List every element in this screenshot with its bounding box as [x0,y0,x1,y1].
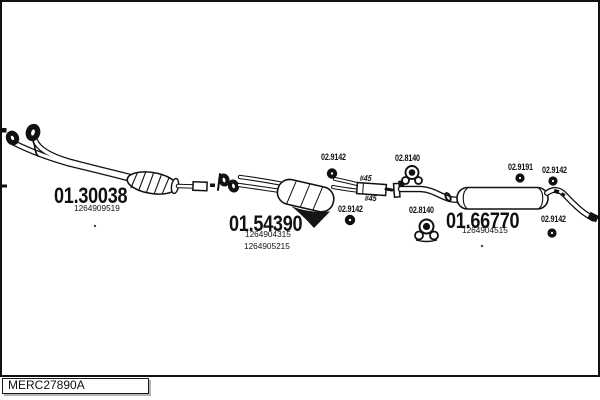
rubber-ring-icon [548,176,557,185]
clamp-code: #45 [364,194,377,203]
flange-icon [219,175,228,186]
flange-icon [7,132,18,144]
fitting-code: 02.9142 [338,205,363,214]
fitting-code: 02.9142 [321,153,346,162]
border-tick [2,128,7,133]
fitting-code: 02.8140 [395,154,420,163]
speck [94,225,96,227]
rubber-ring-icon [515,173,524,182]
hanger-icon [415,220,438,242]
fitting-code: 02.9142 [542,166,567,175]
flange-icon [229,181,238,192]
fitting-code: 02.9191 [508,163,533,172]
fitting-code: 02.8140 [409,206,434,215]
exhaust-parts-diagram: 01.30038 1264909519 01.54390 1264904315 … [0,0,600,400]
rubber-ring-icon [547,228,556,237]
oem-ref: 1264904515 [462,226,508,235]
speck [481,245,483,247]
catalytic-converter [126,169,179,198]
drawing-code: MERC27890A [8,378,85,392]
oem-ref: 1264904315 [245,230,291,239]
rubber-ring-icon [345,215,355,225]
coupling-sleeve [193,182,207,191]
fitting-code: 02.9142 [541,215,566,224]
hanger-icon [402,166,422,184]
flange-icon [27,126,39,140]
oem-ref: 1264909519 [74,204,120,213]
drawing-code-box: MERC27890A [2,378,149,394]
rubber-ring-icon [327,168,337,178]
oem-ref: 1264905215 [244,242,290,251]
clamp-code: #45 [359,174,372,183]
